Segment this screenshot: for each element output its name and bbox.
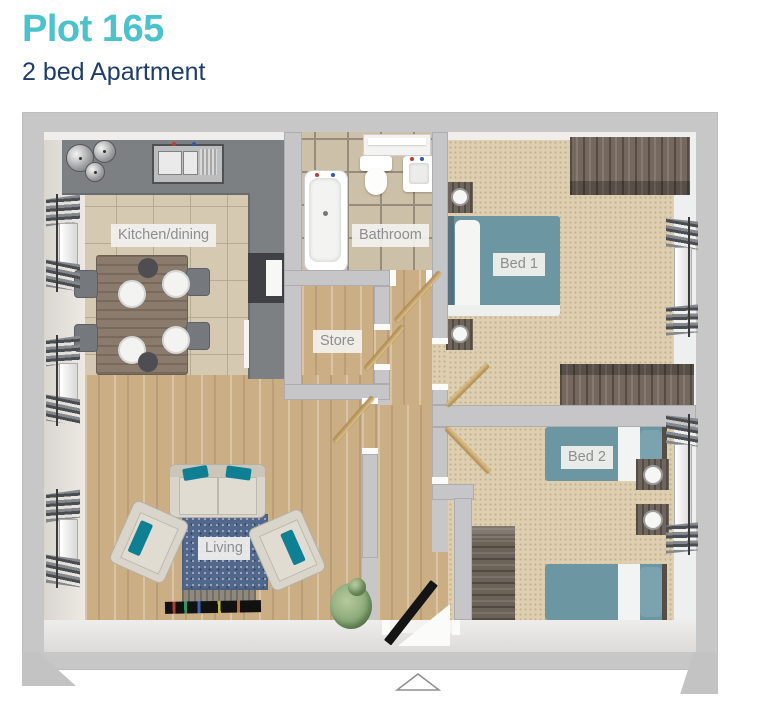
dinner-plate xyxy=(162,326,190,354)
blind-slats xyxy=(666,218,698,249)
interior-wall-entrance-bed2 xyxy=(454,498,472,620)
window-pane xyxy=(59,363,78,401)
alarm-clock xyxy=(451,325,469,343)
toilet-bowl xyxy=(365,169,387,195)
tap-hot xyxy=(315,173,319,177)
dinner-plate xyxy=(118,280,146,308)
door-jamb xyxy=(390,270,396,286)
duvet-fold xyxy=(446,305,560,316)
sink-basin-small xyxy=(183,151,198,175)
placemat xyxy=(138,352,158,372)
door-jamb xyxy=(374,364,390,370)
table-lamp xyxy=(643,465,663,485)
tap-cold xyxy=(420,157,424,161)
bed-pillow xyxy=(640,567,662,617)
nightstand xyxy=(446,319,473,350)
cabinet-top xyxy=(470,526,515,538)
door-jamb xyxy=(432,384,448,390)
window-kitchen xyxy=(46,197,84,289)
wall-face-bottom xyxy=(44,620,696,652)
bath-drain xyxy=(323,211,328,216)
blind-slats xyxy=(46,395,80,426)
blind-slats xyxy=(46,555,80,588)
kitchen-unit-front xyxy=(244,320,249,368)
tap-cold xyxy=(192,142,196,146)
cooktop-oven xyxy=(248,253,284,303)
window-bathroom xyxy=(363,134,431,156)
blind-slats xyxy=(46,336,80,367)
blind-slats xyxy=(46,195,80,227)
bed-pillow xyxy=(455,220,480,312)
cooking-pot-small xyxy=(85,162,105,182)
blind-slats xyxy=(46,490,80,523)
bathtub xyxy=(304,170,348,272)
room-label-kitchen-dining: Kitchen/dining xyxy=(111,224,216,247)
oven-door xyxy=(266,260,282,296)
placemat xyxy=(138,258,158,278)
sofa-seat-cushion xyxy=(218,477,257,515)
curtain-rail xyxy=(688,414,690,555)
nightstand xyxy=(446,182,473,213)
dinner-plate xyxy=(162,270,190,298)
door-jamb xyxy=(452,620,460,635)
blind-slats xyxy=(666,304,698,335)
blind-slats xyxy=(666,415,698,446)
room-label-bathroom: Bathroom xyxy=(352,224,429,247)
window-pane xyxy=(59,519,78,561)
wardrobe-bed1-bottom xyxy=(560,364,694,405)
interior-wall-kitchen-bath xyxy=(284,132,302,400)
window-pane xyxy=(59,223,78,265)
window-sill xyxy=(368,138,426,145)
curtain-rail xyxy=(56,194,58,292)
wall-corner-bevel-left xyxy=(22,652,76,686)
door-jamb xyxy=(374,324,390,330)
triangle-up-icon xyxy=(394,672,442,692)
wash-basin xyxy=(403,156,435,192)
wall-corner-bevel-right xyxy=(664,652,718,694)
door-jamb xyxy=(432,477,448,484)
basin-bowl xyxy=(409,163,429,184)
bathtub-basin xyxy=(309,178,341,262)
page-subtitle: 2 bed Apartment xyxy=(22,58,205,87)
page: { "header": { "plot_title": "Plot 165", … xyxy=(0,0,775,722)
wardrobe-bed1-right xyxy=(570,137,690,195)
house-plant-sprig xyxy=(348,578,366,596)
interior-wall-bed2-west xyxy=(432,427,448,479)
sofa-seat-cushion xyxy=(179,477,218,515)
cooking-pot-medium xyxy=(93,140,116,163)
floorplan-image: Kitchen/dining Bathroom Store Bed 1 Bed … xyxy=(22,112,718,670)
interior-wall-bath-south xyxy=(284,270,390,286)
kitchen-sink xyxy=(152,144,224,184)
room-label-store: Store xyxy=(313,330,362,353)
armchair-seat xyxy=(120,512,179,575)
tall-cabinet xyxy=(470,526,515,620)
wardrobe-front xyxy=(560,364,694,375)
room-label-bed1: Bed 1 xyxy=(493,253,545,276)
interior-wall-bed1-west xyxy=(432,132,448,344)
interior-wall-bed1-bed2-divider xyxy=(432,405,696,427)
window-bed2 xyxy=(664,417,700,552)
blind-slats xyxy=(46,260,80,292)
room-label-living: Living xyxy=(198,537,250,560)
door-jamb xyxy=(432,338,448,344)
alarm-clock xyxy=(451,188,469,206)
bed1-door-threshold xyxy=(432,344,448,388)
sink-drainer xyxy=(200,149,217,175)
table-lamp xyxy=(643,510,663,530)
window-living-1 xyxy=(46,338,84,423)
window-bed1 xyxy=(664,220,700,334)
tap-hot xyxy=(410,157,414,161)
single-bed-2 xyxy=(545,564,667,620)
curtain-rail xyxy=(56,489,58,588)
window-living-2 xyxy=(46,492,84,585)
room-label-bed2: Bed 2 xyxy=(561,446,613,469)
interior-wall-living-hall xyxy=(362,454,378,558)
curtain-rail xyxy=(56,335,58,426)
sink-basin-large xyxy=(158,151,182,175)
duvet-fold xyxy=(618,564,640,620)
blind-slats xyxy=(666,522,698,553)
page-title: Plot 165 xyxy=(22,8,164,51)
tv-screen xyxy=(165,600,261,614)
tap-hot xyxy=(172,142,176,146)
door-jamb xyxy=(362,448,378,454)
entrance-marker-icon xyxy=(394,672,442,692)
tap-cold xyxy=(331,173,335,177)
curtain-rail xyxy=(688,217,690,337)
sofa xyxy=(169,464,266,518)
bed-headboard xyxy=(662,564,667,620)
wardrobe-front xyxy=(570,181,690,195)
interior-wall-store-east-lower xyxy=(374,368,390,384)
